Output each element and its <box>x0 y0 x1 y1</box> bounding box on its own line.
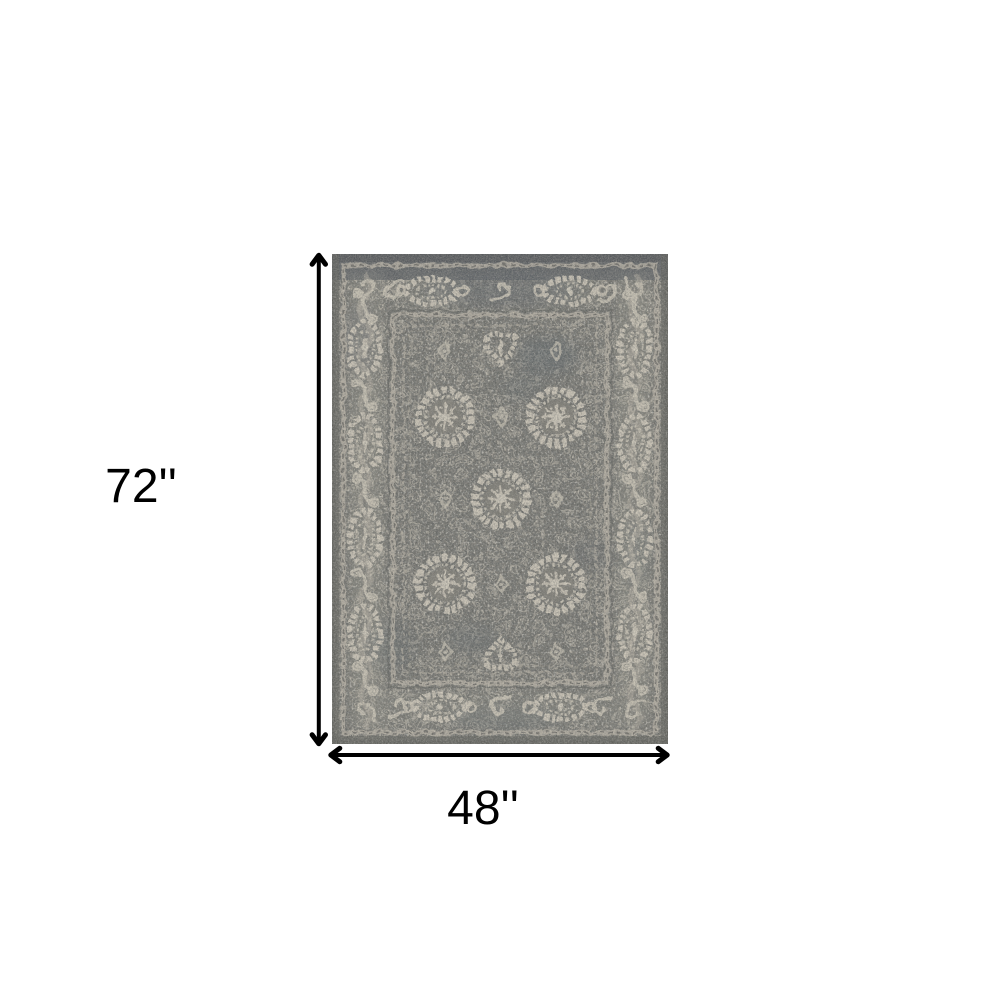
svg-text:72'': 72'' <box>105 460 177 513</box>
svg-text:48'': 48'' <box>447 782 519 835</box>
